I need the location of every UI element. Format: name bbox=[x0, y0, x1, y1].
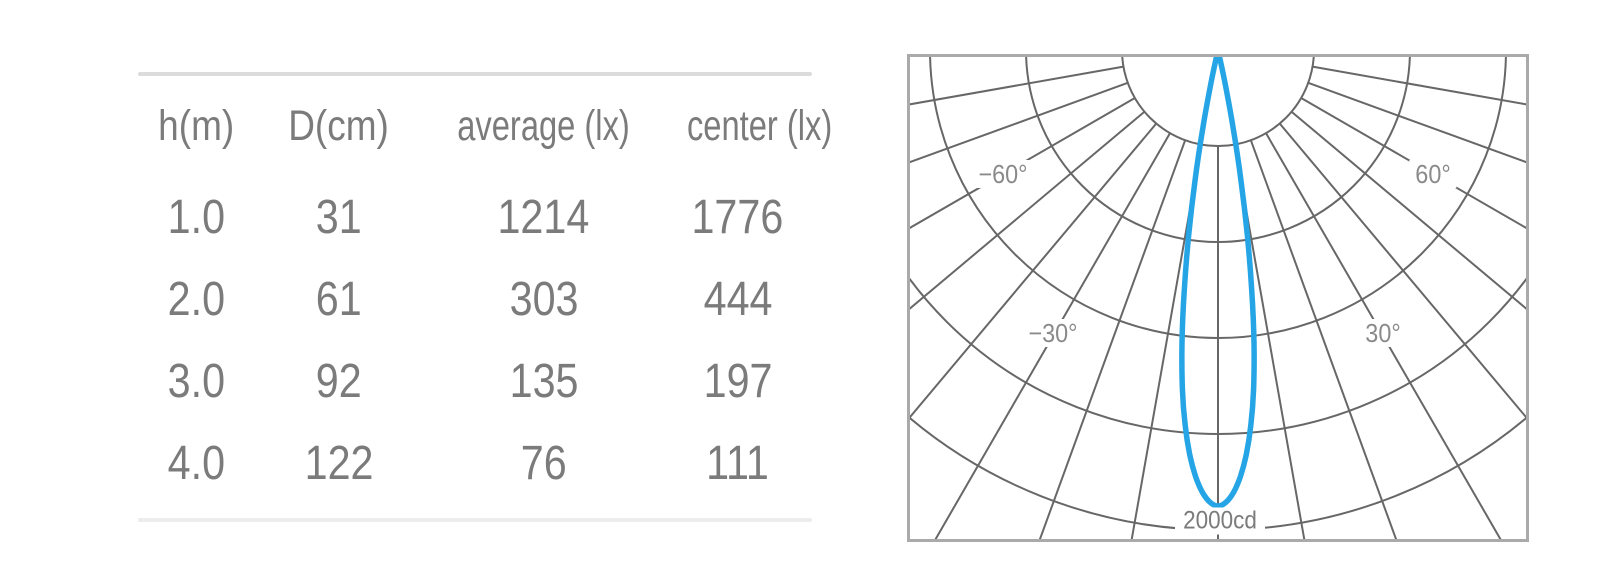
table-row: 2.061303444 bbox=[138, 258, 812, 340]
table-header-cell: h(m) bbox=[138, 102, 254, 151]
polar-radial-line bbox=[1308, 83, 1526, 372]
angle-label-plus60: 60° bbox=[1409, 160, 1456, 188]
table-row: 4.012276111 bbox=[138, 422, 812, 504]
table-cell: 92 bbox=[254, 354, 424, 409]
angle-label-plus30: 30° bbox=[1359, 319, 1406, 347]
table-row: 3.092135197 bbox=[138, 340, 812, 422]
table-header-row: h(m)D(cm)average (lx)center (lx) bbox=[138, 76, 812, 176]
table-cell: 1214 bbox=[424, 190, 664, 245]
table-cell: 2.0 bbox=[138, 272, 254, 327]
photometry-table: h(m)D(cm)average (lx)center (lx) 1.03112… bbox=[138, 72, 812, 522]
table-cell: 1776 bbox=[664, 190, 812, 245]
table-row: 1.03112141776 bbox=[138, 176, 812, 258]
polar-radial-line bbox=[1313, 67, 1526, 214]
table-cell: 444 bbox=[664, 272, 812, 327]
table-cell: 122 bbox=[254, 436, 424, 491]
polar-diagram: −60° −30° 30° 60° 2000cd bbox=[907, 54, 1529, 542]
table-cell: 197 bbox=[664, 354, 812, 409]
polar-radial-line bbox=[910, 83, 1128, 372]
table-cell: 31 bbox=[254, 190, 424, 245]
table-cell: 3.0 bbox=[138, 354, 254, 409]
table-cell: 111 bbox=[664, 436, 812, 491]
table-header-cell: average (lx) bbox=[424, 102, 664, 151]
table-cell: 303 bbox=[424, 272, 664, 327]
table-bottom-rule bbox=[138, 518, 812, 522]
table-cell: 4.0 bbox=[138, 436, 254, 491]
candela-label: 2000cd bbox=[1175, 508, 1265, 535]
table-header-cell: center (lx) bbox=[664, 102, 812, 151]
table-cell: 76 bbox=[424, 436, 664, 491]
polar-grid bbox=[910, 57, 1526, 539]
table-cell: 61 bbox=[254, 272, 424, 327]
angle-label-minus60: −60° bbox=[972, 160, 1035, 188]
polar-arc bbox=[1122, 57, 1314, 146]
page: { "table": { "headers": ["h(m)", "D(cm)"… bbox=[0, 0, 1600, 576]
table-cell: 1.0 bbox=[138, 190, 254, 245]
table-header-cell: D(cm) bbox=[254, 102, 424, 151]
table-body: 1.031121417762.0613034443.0921351974.012… bbox=[138, 176, 812, 504]
angle-label-minus30: −30° bbox=[1022, 319, 1085, 347]
polar-radial-line bbox=[910, 67, 1123, 214]
table-cell: 135 bbox=[424, 354, 664, 409]
polar-grid-svg bbox=[910, 57, 1526, 539]
